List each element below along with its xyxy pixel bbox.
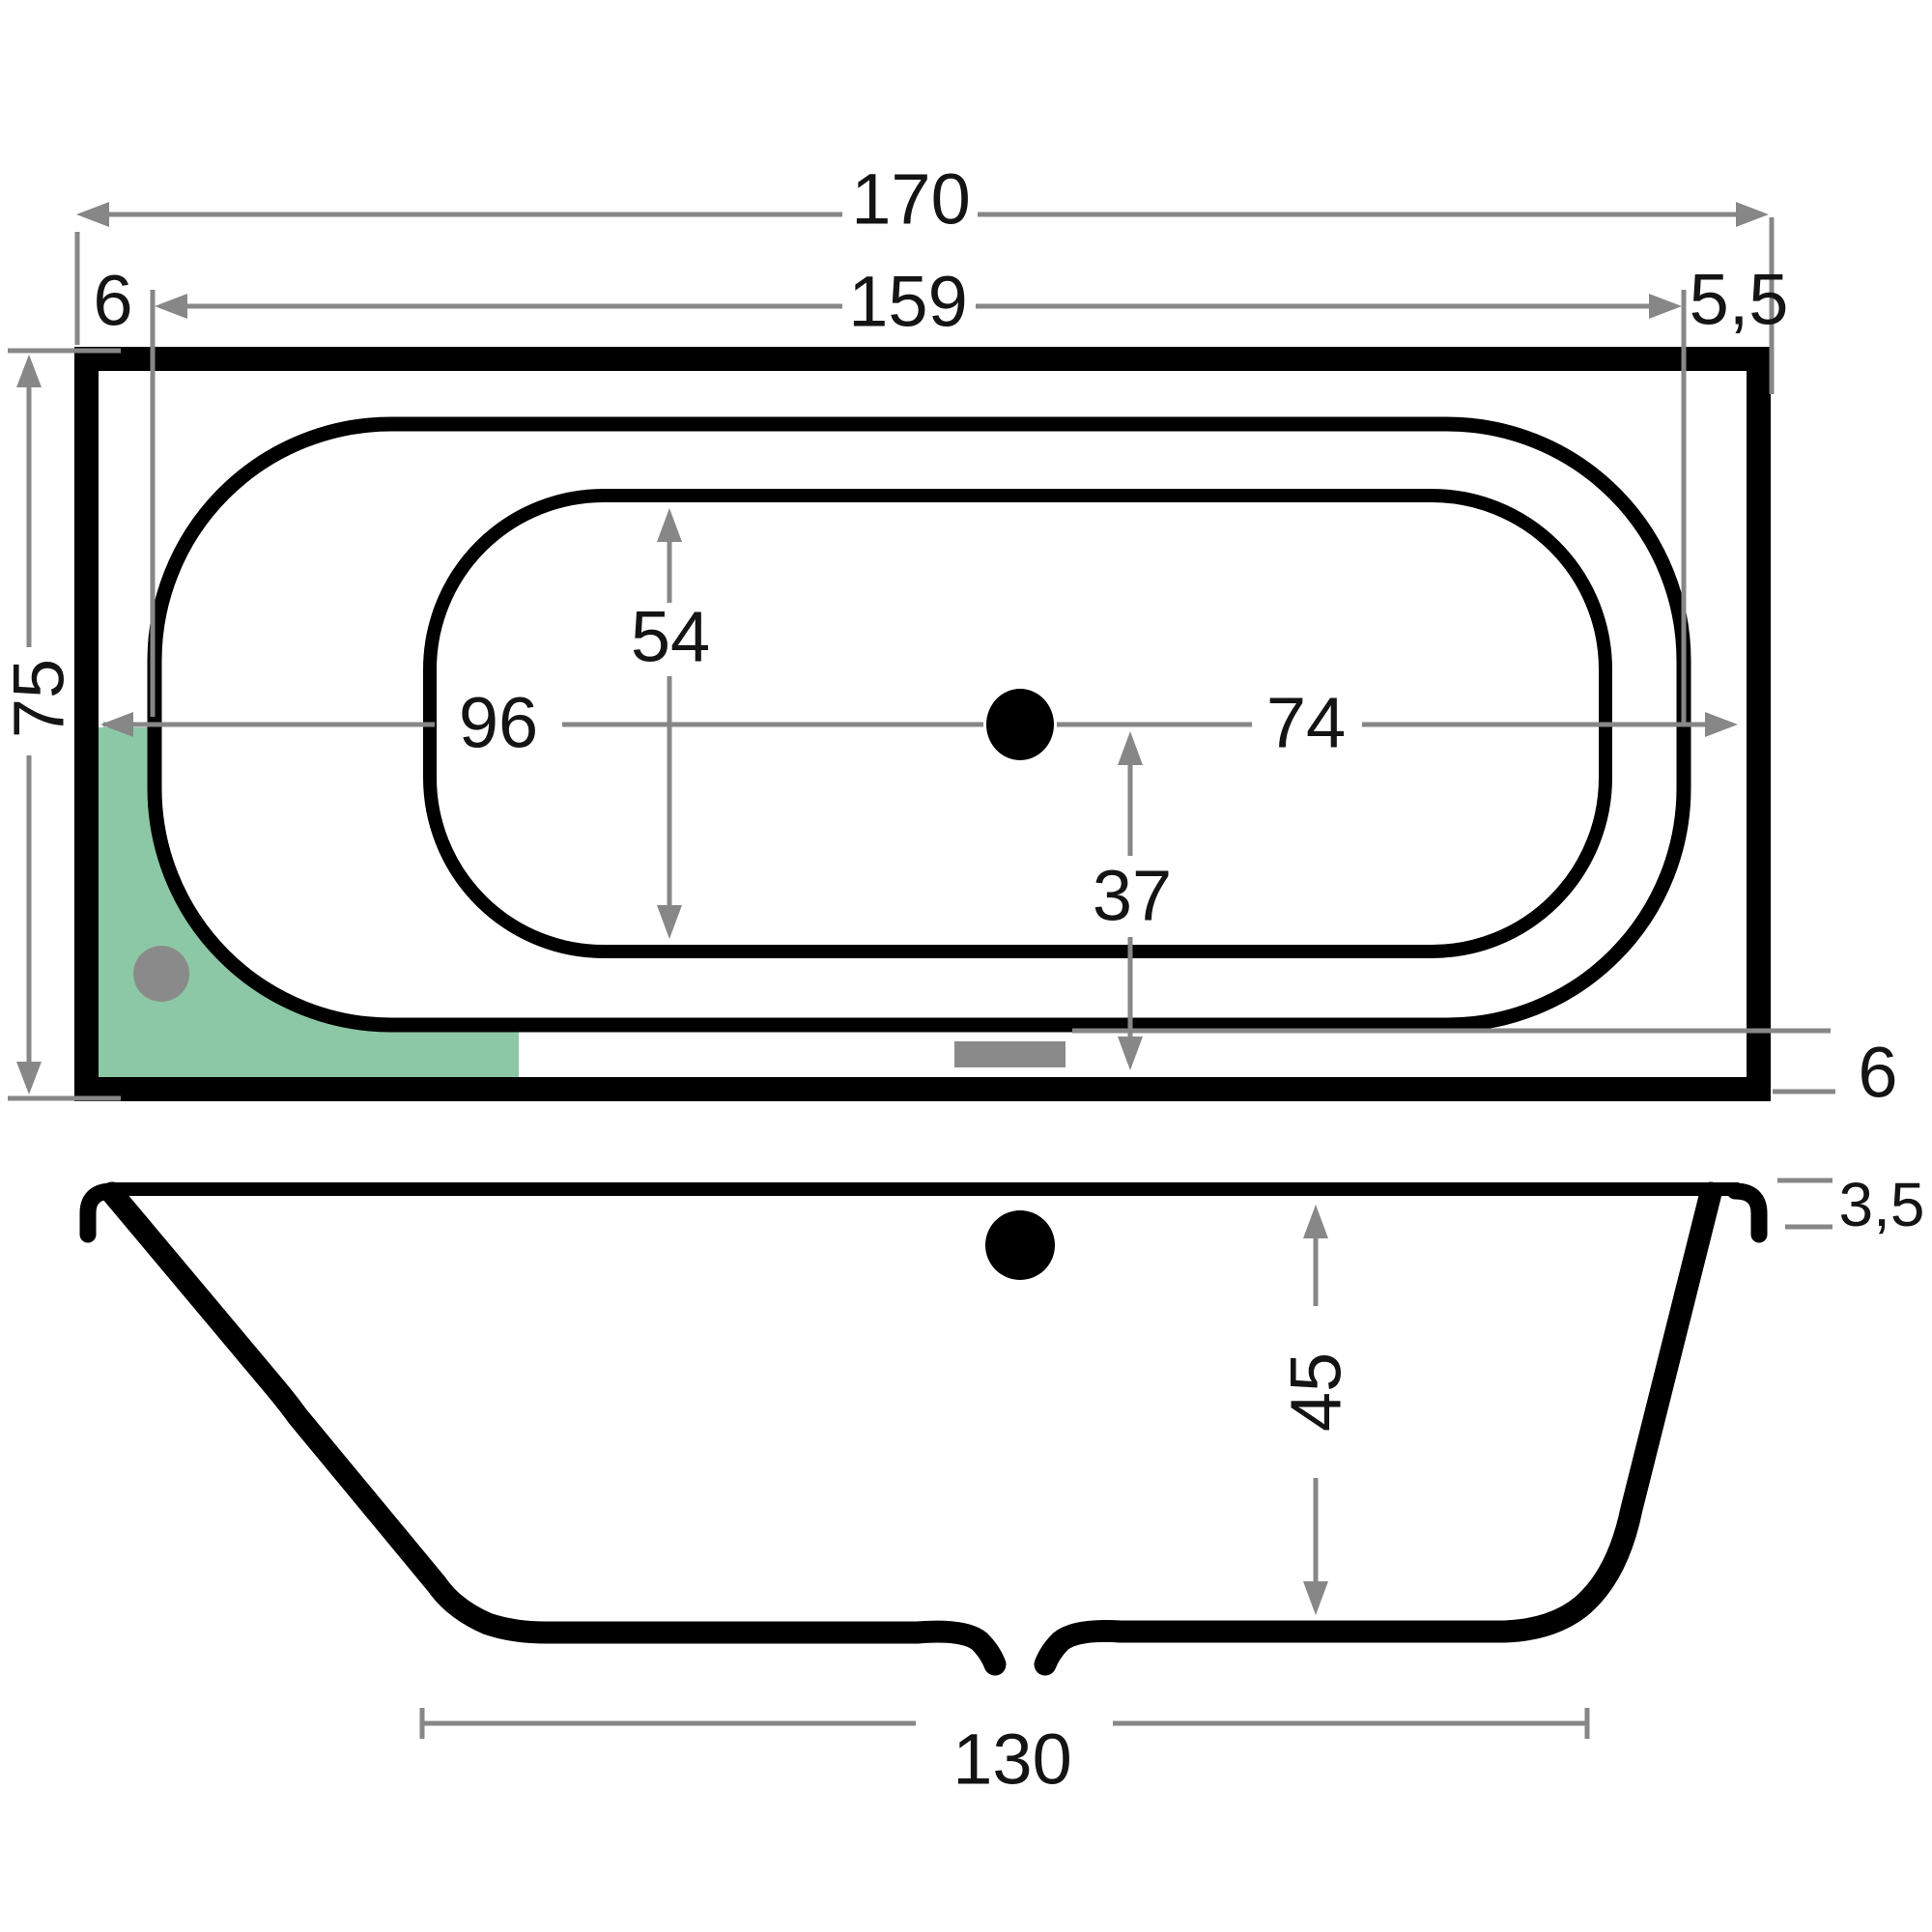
- overflow-bar: [954, 1041, 1065, 1067]
- side-view: 3,5 45 130: [88, 1170, 1924, 1800]
- arrow-up-icon: [1303, 1205, 1328, 1238]
- dim-label-130: 130: [952, 1719, 1071, 1800]
- dim-overall-length: 170: [76, 159, 1769, 240]
- dim-inner-length: 159: [155, 262, 1682, 342]
- dim-floor-length: 130: [422, 1708, 1587, 1800]
- dim-label-54: 54: [631, 597, 710, 677]
- arrow-down-icon: [16, 1062, 42, 1094]
- dim-label-rim-right: 5,5: [1690, 260, 1789, 340]
- arrow-down-icon: [1303, 1581, 1328, 1615]
- side-wall-right: [1045, 1193, 1711, 1664]
- dim-rim-drop: 3,5: [1777, 1170, 1924, 1239]
- dim-label-37: 37: [1093, 856, 1172, 936]
- dim-label-159: 159: [848, 262, 967, 342]
- dim-depth: 45: [1276, 1205, 1356, 1615]
- arrow-right-icon: [1736, 202, 1769, 227]
- drain-dot: [986, 689, 1054, 760]
- drawing-canvas: 170 159 6 5,5 75 54 96 74: [0, 0, 1932, 1932]
- arrow-left-icon: [76, 202, 109, 227]
- dim-label-rim-left: 6: [93, 261, 132, 341]
- dim-label-rim-bottom: 6: [1858, 1033, 1897, 1113]
- dim-overall-width: 75: [0, 355, 79, 1094]
- arrow-left-icon: [155, 294, 187, 319]
- side-wall-left: [112, 1193, 995, 1664]
- bathtub-drawing: 170 159 6 5,5 75 54 96 74: [0, 0, 1932, 1932]
- jet-dot: [133, 946, 189, 1002]
- dim-label-3-5: 3,5: [1839, 1170, 1925, 1239]
- dim-label-74: 74: [1266, 683, 1346, 763]
- dim-label-170: 170: [851, 159, 970, 240]
- dim-label-75: 75: [0, 659, 79, 738]
- arrow-right-icon: [1649, 294, 1682, 319]
- drain-dot: [985, 1210, 1055, 1280]
- side-rim-hook-right: [1735, 1191, 1759, 1235]
- dim-label-96: 96: [459, 683, 538, 763]
- dim-label-45: 45: [1276, 1352, 1356, 1432]
- arrow-up-icon: [16, 355, 42, 387]
